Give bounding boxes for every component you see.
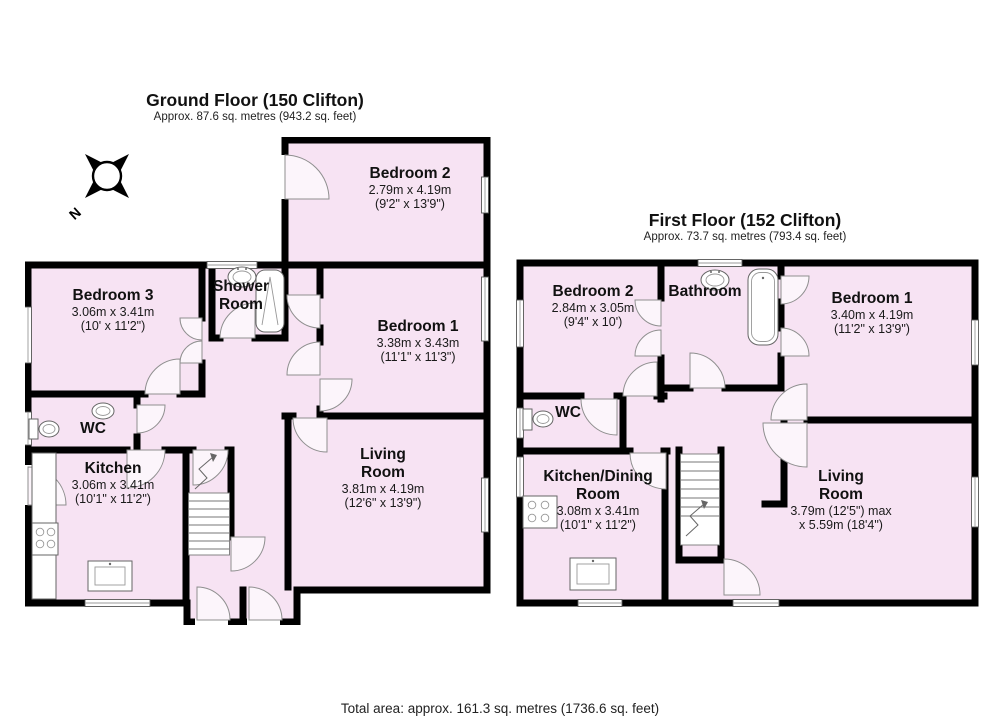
kitchen-sink-icon	[88, 561, 132, 591]
bathtub-icon	[748, 269, 778, 345]
room-label-g-kitchen: Kitchen 3.06m x 3.41m (10'1" x 11'2")	[72, 460, 155, 507]
room-label-g-bedroom1: Bedroom 1 3.38m x 3.43m (11'1" x 11'3")	[377, 318, 460, 365]
room-label-f-bedroom2: Bedroom 2 2.84m x 3.05m (9'4" x 10')	[552, 283, 635, 330]
first-floor-title: First Floor (152 Clifton)	[649, 210, 842, 231]
first-floor-subtitle: Approx. 73.7 sq. metres (793.4 sq. feet)	[644, 231, 847, 243]
ground-floor-title: Ground Floor (150 Clifton)	[146, 90, 364, 111]
room-label-g-bedroom3: Bedroom 3 3.06m x 3.41m (10' x 11'2")	[72, 287, 155, 334]
total-area-text: Total area: approx. 161.3 sq. metres (17…	[0, 701, 1000, 716]
ground-floor-subtitle: Approx. 87.6 sq. metres (943.2 sq. feet)	[154, 111, 357, 123]
room-label-f-wc: WC	[555, 404, 581, 422]
room-label-f-bedroom1: Bedroom 1 3.40m x 4.19m (11'2" x 13'9")	[831, 290, 914, 337]
kitchen-sink-icon-first	[570, 558, 616, 590]
wc-sink-icon	[92, 403, 114, 419]
wc-toilet-icon	[29, 419, 59, 439]
room-label-g-living: Living Room 3.81m x 4.19m (12'6" x 13'9"…	[303, 446, 463, 511]
room-label-f-bathroom: Bathroom	[650, 283, 760, 301]
first-stairs	[681, 454, 720, 545]
room-label-g-wc: WC	[80, 420, 106, 438]
floorplan-page: Ground Floor (150 Clifton) Approx. 87.6 …	[0, 0, 1000, 727]
room-label-f-living: Living Room 3.79m (12'5") max x 5.59m (1…	[751, 468, 931, 533]
room-label-g-shower: Shower Room	[203, 278, 279, 314]
kitchen-counter-icon	[32, 453, 58, 599]
room-label-f-kitchen-dining: Kitchen/Dining Room 3.08m x 3.41m (10'1"…	[513, 468, 683, 533]
room-label-g-bedroom2: Bedroom 2 2.79m x 4.19m (9'2" x 13'9")	[369, 165, 452, 212]
